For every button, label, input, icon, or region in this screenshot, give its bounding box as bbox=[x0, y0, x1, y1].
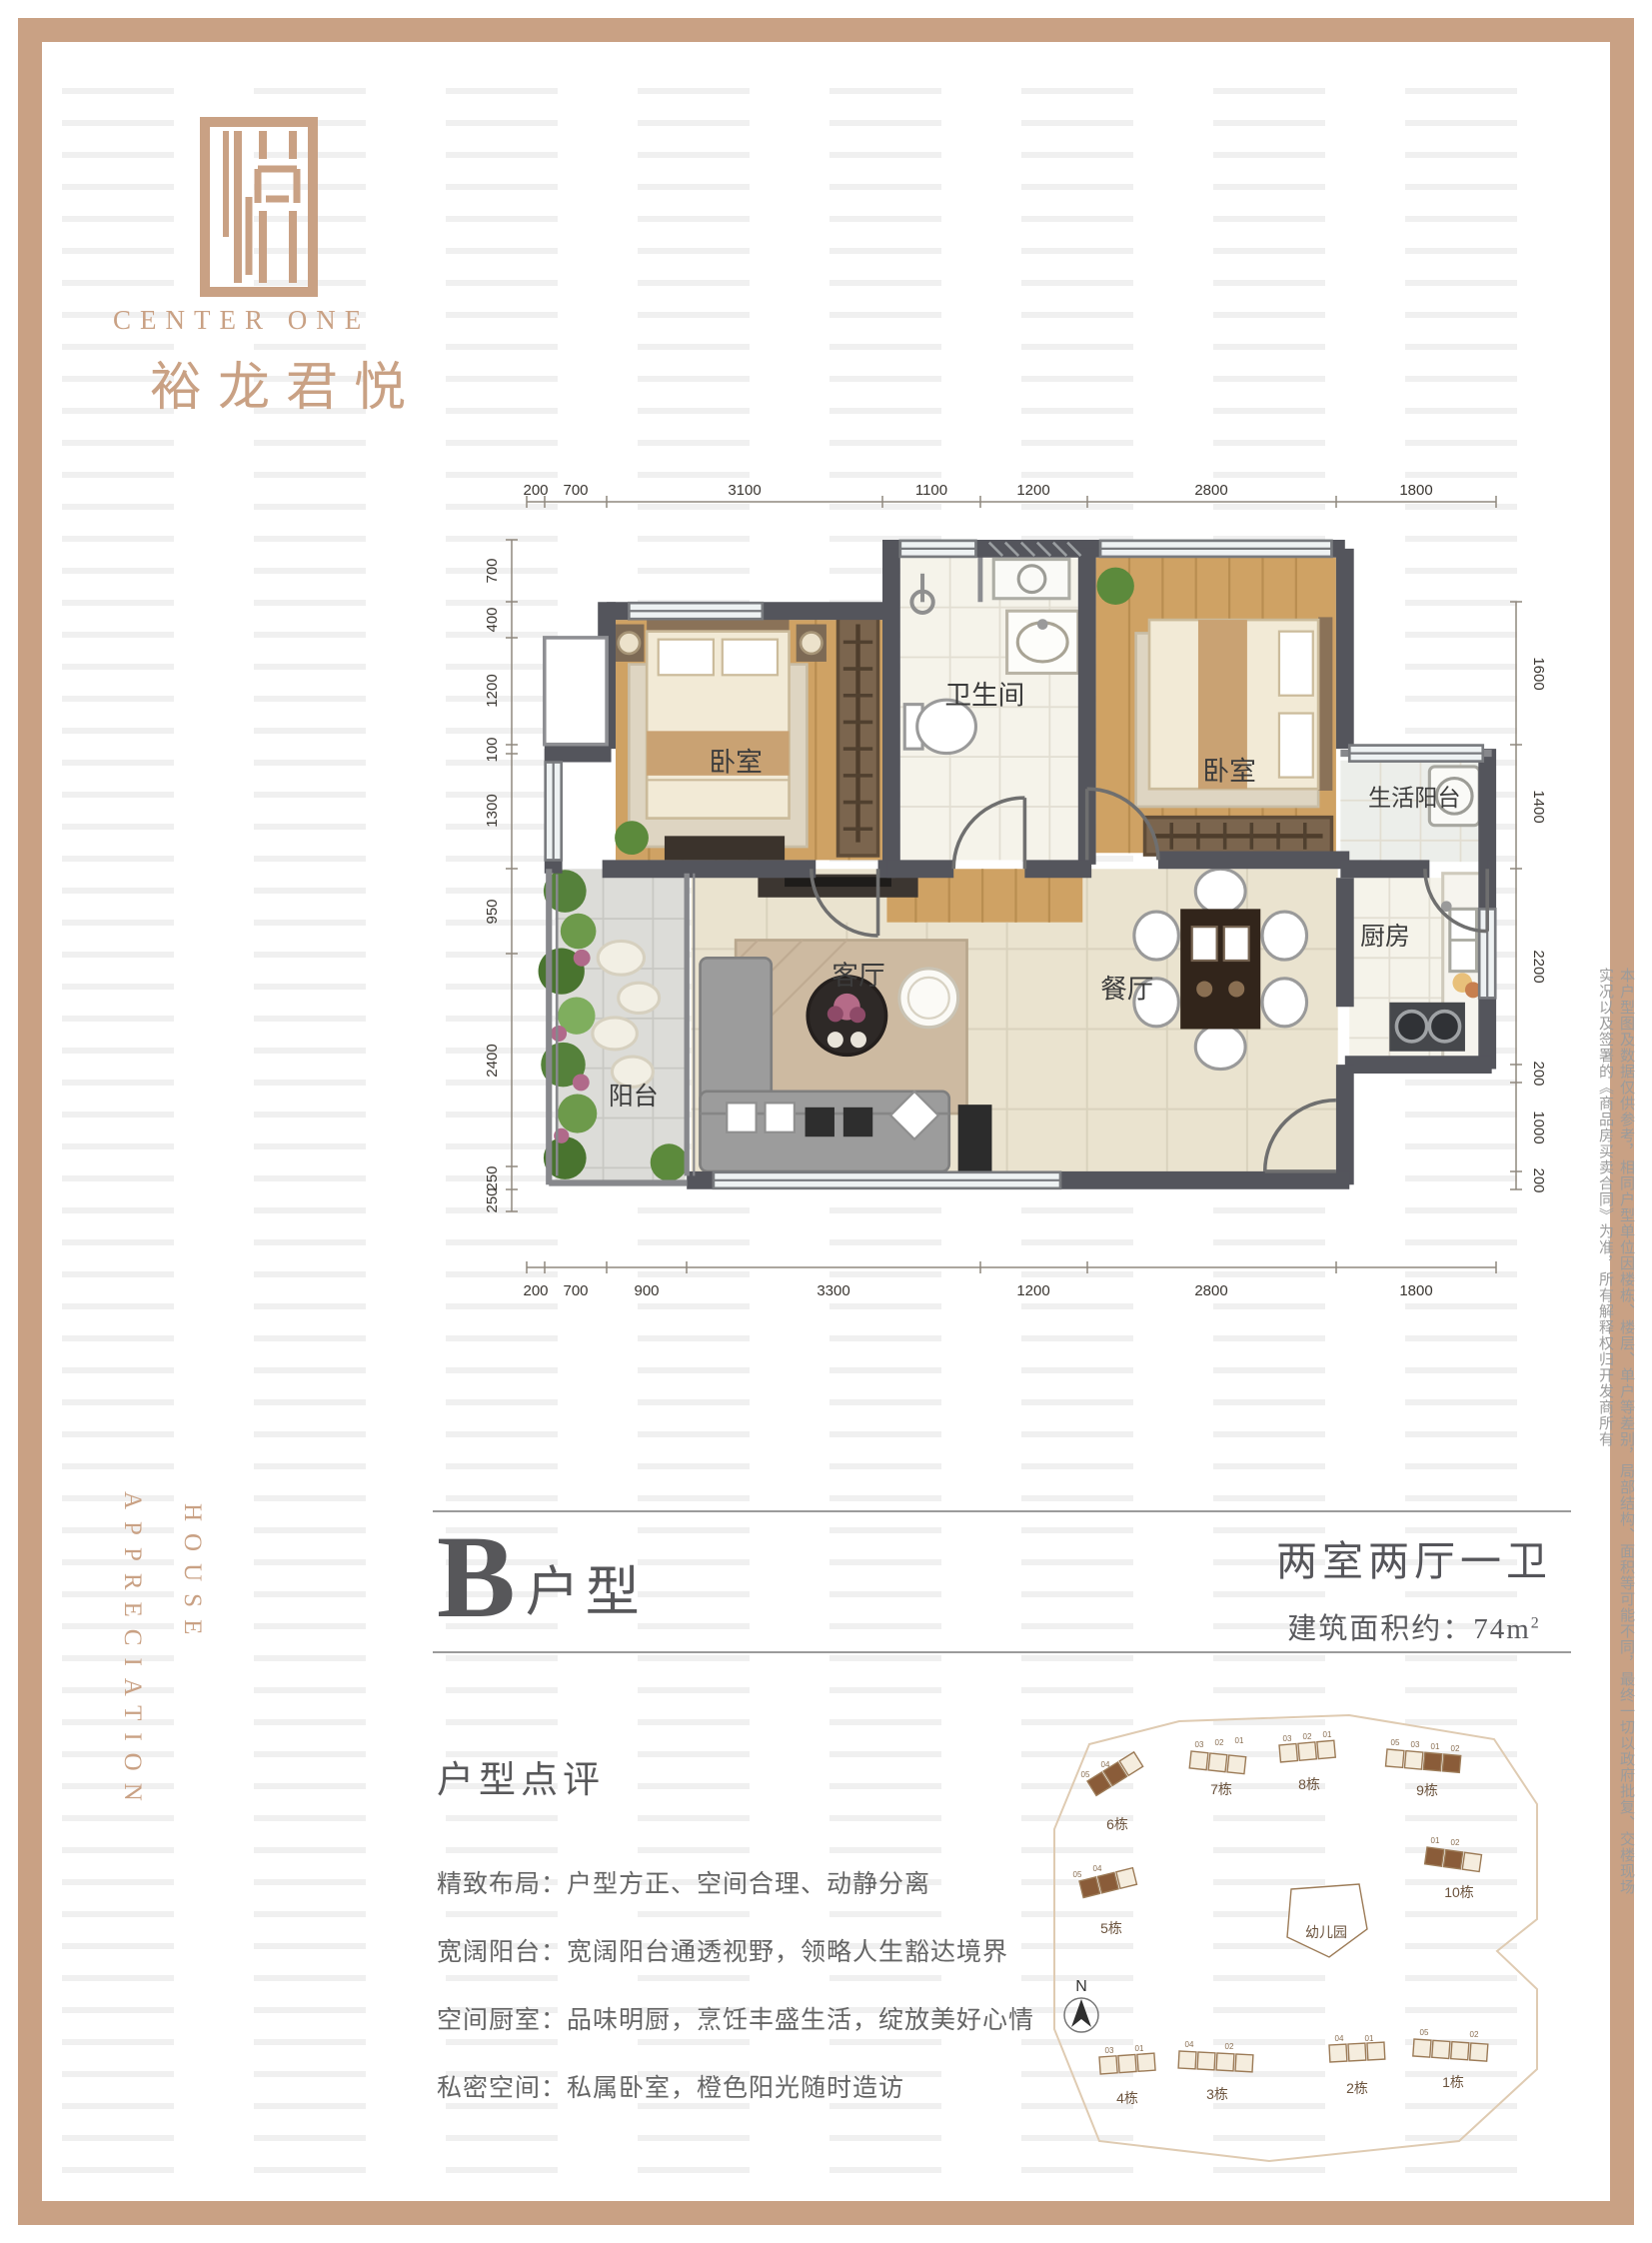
dim-top-4: 1100 bbox=[915, 482, 947, 499]
unit-num: 05 bbox=[1391, 1738, 1400, 1747]
dim-bottom-7: 1800 bbox=[1399, 1282, 1432, 1299]
north-compass: N bbox=[1064, 1978, 1098, 2032]
brochure-page: CENTER ONE 裕龙君悦 HOUSE APPRECIATION 本户型图及… bbox=[0, 0, 1652, 2243]
dim-left-6: 950 bbox=[484, 899, 501, 924]
building-2 bbox=[1329, 2042, 1385, 2062]
label-dining: 餐厅 bbox=[1100, 974, 1153, 1004]
bedroom1-furniture bbox=[614, 611, 877, 860]
dim-left-1: 700 bbox=[484, 558, 501, 583]
unit-num: 01 bbox=[1135, 2044, 1144, 2053]
unit-num: 01 bbox=[1323, 1730, 1332, 1739]
label-building-6: 6栋 bbox=[1106, 1816, 1128, 1832]
dim-bottom-4: 3300 bbox=[817, 1282, 849, 1299]
title-divider-bottom bbox=[433, 1651, 1571, 1653]
label-building-4: 4栋 bbox=[1116, 2090, 1138, 2106]
dim-top-7: 1800 bbox=[1399, 482, 1432, 499]
review-item-1: 精致布局：户型方正、空间合理、动静分离 bbox=[437, 1867, 1036, 1935]
unit-type-title: B户型 bbox=[437, 1521, 646, 1633]
building-5 bbox=[1079, 1868, 1136, 1898]
dim-bottom-2: 700 bbox=[563, 1282, 588, 1299]
building-3 bbox=[1178, 2051, 1253, 2072]
dim-top-2: 700 bbox=[563, 482, 588, 499]
dim-right-4: 200 bbox=[1530, 1061, 1547, 1086]
building-9 bbox=[1386, 1749, 1461, 1772]
unit-num: 03 bbox=[1195, 1740, 1204, 1749]
dim-right-2: 1400 bbox=[1530, 790, 1547, 823]
title-divider-top bbox=[433, 1510, 1571, 1512]
unit-num: 05 bbox=[1420, 2028, 1429, 2037]
unit-area-exponent: 2 bbox=[1531, 1614, 1541, 1631]
unit-num: 05 bbox=[1073, 1870, 1082, 1879]
dim-bottom-5: 1200 bbox=[1016, 1282, 1049, 1299]
dim-left-8: 250 bbox=[484, 1165, 501, 1190]
building-10 bbox=[1425, 1847, 1482, 1871]
dim-right-6: 200 bbox=[1530, 1167, 1547, 1192]
label-living: 客厅 bbox=[831, 961, 884, 991]
unit-num: 02 bbox=[1451, 1838, 1460, 1847]
site-plan: 03 02 01 03 02 01 05 03 01 02 05 04 05 0… bbox=[1029, 1689, 1589, 2169]
unit-layout-text: 两室两厅一卫 bbox=[1264, 1527, 1564, 1587]
site-plan-figure: 03 02 01 03 02 01 05 03 01 02 05 04 05 0… bbox=[1029, 1689, 1589, 2169]
dim-right-5: 1000 bbox=[1530, 1111, 1547, 1143]
label-balcony: 阳台 bbox=[609, 1083, 659, 1111]
dim-left-9: 250 bbox=[484, 1187, 501, 1212]
dim-bottom-3: 900 bbox=[634, 1282, 659, 1299]
building-7 bbox=[1189, 1751, 1245, 1774]
brand-name-en: CENTER ONE bbox=[113, 305, 413, 336]
vertical-label-house: HOUSE bbox=[178, 1503, 206, 1673]
unit-spec: 两室两厅一卫 建筑面积约：74m2 bbox=[1264, 1527, 1564, 1647]
label-service-balcony: 生活阳台 bbox=[1368, 785, 1461, 811]
floor-plan-area: 200 700 3100 1100 1200 2800 1800 200 700… bbox=[420, 440, 1599, 1319]
unit-type-word: 户型 bbox=[526, 1562, 646, 1622]
unit-num: 04 bbox=[1185, 2040, 1194, 2049]
unit-num: 03 bbox=[1283, 1734, 1292, 1743]
review-item-4: 私密空间：私属卧室，橙色阳光随时造访 bbox=[437, 2071, 1036, 2139]
dim-left-5: 1300 bbox=[484, 794, 501, 827]
unit-num: 02 bbox=[1451, 1744, 1460, 1753]
dim-left-7: 2400 bbox=[484, 1044, 501, 1077]
dim-top-1: 200 bbox=[523, 482, 548, 499]
dim-right-3: 2200 bbox=[1530, 950, 1547, 983]
unit-type-letter: B bbox=[437, 1511, 516, 1642]
unit-num: 02 bbox=[1225, 2042, 1234, 2051]
building-1 bbox=[1413, 2039, 1488, 2061]
label-building-5: 5栋 bbox=[1100, 1920, 1122, 1936]
dim-top-5: 1200 bbox=[1016, 482, 1049, 499]
north-label: N bbox=[1075, 1978, 1087, 1995]
building-6 bbox=[1087, 1752, 1143, 1796]
label-building-3: 3栋 bbox=[1206, 2086, 1228, 2102]
unit-num: 04 bbox=[1335, 2034, 1344, 2043]
center-one-logo-icon bbox=[200, 117, 318, 297]
label-building-8: 8栋 bbox=[1298, 1776, 1320, 1792]
kindergarten-outline bbox=[1287, 1884, 1367, 1957]
unit-num: 02 bbox=[1303, 1732, 1312, 1741]
vertical-label-appreciation: APPRECIATION bbox=[118, 1491, 146, 1921]
unit-num: 02 bbox=[1470, 2030, 1479, 2039]
unit-num: 01 bbox=[1365, 2034, 1374, 2043]
unit-area-label: 建筑面积约： bbox=[1287, 1613, 1473, 1645]
dim-left-3: 1200 bbox=[484, 674, 501, 707]
unit-num: 04 bbox=[1093, 1864, 1102, 1873]
ac-platform bbox=[545, 638, 607, 745]
unit-num: 01 bbox=[1235, 1736, 1244, 1745]
dim-left-4: 100 bbox=[484, 737, 501, 762]
unit-num: 04 bbox=[1101, 1760, 1110, 1769]
unit-num: 01 bbox=[1431, 1836, 1440, 1845]
dim-right-1: 1600 bbox=[1530, 657, 1547, 690]
dim-bottom-6: 2800 bbox=[1194, 1282, 1227, 1299]
disclaimer-text: 本户型图及数据仅供参考，相同户型单位因楼栋、楼层、单户等差别，局部结构、面积等可… bbox=[1595, 968, 1637, 1907]
compass-needle-icon bbox=[1071, 1999, 1091, 2027]
label-building-7: 7栋 bbox=[1210, 1781, 1232, 1797]
site-unit-numbers: 03 02 01 03 02 01 05 03 01 02 05 04 05 0… bbox=[1073, 1730, 1479, 2055]
brand-name-cn: 裕龙君悦 bbox=[150, 345, 450, 420]
unit-num: 03 bbox=[1411, 1740, 1420, 1749]
floor-plan-drawing: 卧室 卫生间 卧室 生活阳台 客厅 餐厅 厨房 阳台 bbox=[539, 541, 1496, 1188]
unit-num: 05 bbox=[1081, 1770, 1090, 1779]
label-bedroom1: 卧室 bbox=[709, 747, 762, 777]
dim-bottom-1: 200 bbox=[523, 1282, 548, 1299]
label-bathroom: 卫生间 bbox=[944, 681, 1024, 711]
building-4 bbox=[1099, 2053, 1155, 2074]
label-building-10: 10栋 bbox=[1444, 1884, 1474, 1900]
unit-num: 01 bbox=[1431, 1742, 1440, 1751]
label-building-1: 1栋 bbox=[1442, 2074, 1464, 2090]
dim-top-6: 2800 bbox=[1194, 482, 1227, 499]
unit-area-text: 建筑面积约：74m2 bbox=[1264, 1605, 1564, 1647]
label-kitchen: 厨房 bbox=[1360, 923, 1410, 951]
unit-num: 03 bbox=[1105, 2046, 1114, 2055]
dim-top-3: 3100 bbox=[728, 482, 761, 499]
label-building-9: 9栋 bbox=[1416, 1782, 1438, 1798]
building-8 bbox=[1279, 1740, 1335, 1762]
unit-num: 02 bbox=[1215, 1738, 1224, 1747]
review-item-2: 宽阔阳台：宽阔阳台通透视野，领略人生豁达境界 bbox=[437, 1935, 1036, 2003]
review-list: 精致布局：户型方正、空间合理、动静分离 宽阔阳台：宽阔阳台通透视野，领略人生豁达… bbox=[437, 1867, 1036, 2139]
unit-area-value: 74m bbox=[1473, 1613, 1531, 1645]
label-kindergarten: 幼儿园 bbox=[1305, 1924, 1347, 1940]
label-building-2: 2栋 bbox=[1346, 2080, 1368, 2096]
dim-left-2: 400 bbox=[484, 607, 501, 632]
review-item-3: 空间厨室：品味明厨，烹饪丰盛生活，绽放美好心情 bbox=[437, 2003, 1036, 2071]
label-bedroom2: 卧室 bbox=[1202, 756, 1255, 786]
floor-plan-figure: 200 700 3100 1100 1200 2800 1800 200 700… bbox=[420, 440, 1599, 1319]
review-heading: 户型点评 bbox=[437, 1749, 605, 1803]
